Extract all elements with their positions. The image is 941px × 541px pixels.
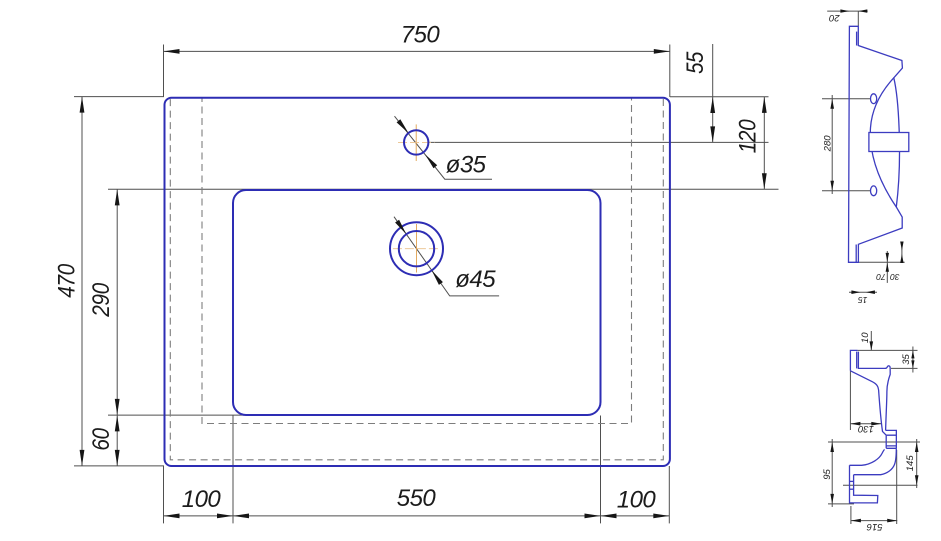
svg-text:145: 145 [905,455,916,472]
svg-text:55: 55 [681,51,708,74]
svg-text:60: 60 [88,427,115,450]
svg-text:ø35: ø35 [446,152,487,179]
svg-text:10: 10 [860,332,871,343]
svg-text:120: 120 [734,119,761,153]
svg-text:130: 130 [857,423,874,434]
svg-text:280: 280 [822,135,833,153]
svg-text:70: 70 [876,272,886,282]
svg-text:30: 30 [890,272,900,282]
svg-text:100: 100 [617,487,657,514]
svg-text:95: 95 [822,469,833,480]
svg-text:100: 100 [182,486,222,513]
svg-text:290: 290 [88,282,115,317]
svg-text:550: 550 [397,485,437,512]
svg-text:35: 35 [901,354,912,365]
svg-text:516: 516 [866,521,883,532]
svg-text:15: 15 [858,295,868,305]
svg-text:20: 20 [828,12,840,23]
svg-text:470: 470 [53,263,80,297]
svg-text:750: 750 [401,22,441,49]
svg-text:ø45: ø45 [455,266,496,293]
